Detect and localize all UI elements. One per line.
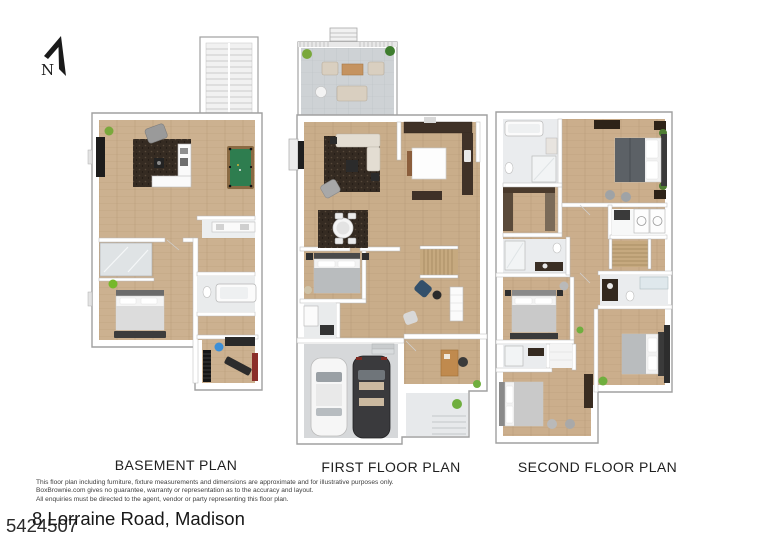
kitchen-island <box>412 148 446 179</box>
pouf <box>605 190 615 200</box>
basement-stairwell <box>200 37 258 117</box>
sofa <box>367 147 380 171</box>
side-table <box>316 87 327 98</box>
second-floor-plan-label: SECOND FLOOR PLAN <box>489 459 706 475</box>
disclaimer-line-2: BoxBrownie.com gives no guarantee, warra… <box>36 487 436 495</box>
coffee-table <box>346 160 358 172</box>
plant <box>577 327 584 334</box>
plant <box>105 127 114 136</box>
shower <box>640 277 668 289</box>
pouf <box>565 419 575 429</box>
nightstand <box>654 190 666 199</box>
bathroom-4 <box>600 275 668 305</box>
bean-bag <box>109 280 118 289</box>
side-table <box>433 291 442 300</box>
compass: N <box>36 30 78 82</box>
second-floor-stairs <box>609 239 651 269</box>
outdoor-sofa <box>337 86 367 101</box>
desk <box>441 350 458 376</box>
window <box>88 292 92 306</box>
master-bathroom <box>503 119 558 185</box>
desk-chair <box>458 357 468 367</box>
vanity <box>528 348 544 356</box>
window <box>88 150 92 164</box>
basement-plan-label: BASEMENT PLAN <box>68 457 284 473</box>
toilet <box>626 291 634 301</box>
nightstand <box>654 121 666 130</box>
deck <box>298 28 397 118</box>
pouf <box>621 192 631 202</box>
first-floor-plan <box>288 26 493 450</box>
entry-porch <box>406 393 468 436</box>
second-floor-plan <box>490 106 690 450</box>
car-dark <box>353 356 390 438</box>
washer <box>634 209 649 233</box>
pouf <box>560 282 569 291</box>
plant <box>599 377 608 386</box>
plant <box>302 49 312 59</box>
pouf <box>547 419 557 429</box>
first-floor-bedroom <box>304 253 369 294</box>
compass-label: N <box>41 61 54 79</box>
bathroom-2 <box>503 239 566 273</box>
toilet <box>203 287 211 298</box>
toilet <box>553 243 561 253</box>
first-floor-stairs <box>420 246 458 278</box>
fireplace-bump <box>289 139 298 170</box>
dresser <box>594 120 620 129</box>
plant <box>473 380 481 388</box>
tv <box>298 141 304 169</box>
disclaimer-line-3: All enquiries must be directed to the ag… <box>36 496 436 504</box>
bookshelf <box>450 287 463 321</box>
dining-area <box>318 210 368 248</box>
first-floor-plan-label: FIRST FLOOR PLAN <box>291 459 491 475</box>
closet <box>550 344 572 368</box>
basement-bathroom <box>197 276 256 312</box>
outdoor-armchair <box>322 62 338 75</box>
vanity <box>535 262 563 271</box>
plant <box>452 399 462 409</box>
property-address: 8 Lorraine Road, Madison <box>32 508 245 530</box>
toilet <box>505 163 513 174</box>
sofa <box>336 134 380 147</box>
laundry <box>612 209 665 235</box>
pool-table <box>227 146 254 189</box>
car-white <box>311 358 347 436</box>
shower <box>505 346 523 366</box>
floor-plan-sheet: N <box>0 0 768 542</box>
vanity <box>546 138 557 154</box>
basement-kitchenette <box>202 220 255 238</box>
coffee-table <box>342 64 363 75</box>
outdoor-armchair <box>368 62 384 75</box>
disclaimer: This floor plan including furniture, fix… <box>36 479 436 504</box>
pouf <box>304 286 312 294</box>
tv <box>96 137 105 177</box>
basement-plan <box>85 30 300 402</box>
mirrored-closet <box>100 243 152 276</box>
accent-wall <box>664 325 670 383</box>
bed <box>615 134 667 186</box>
wardrobe <box>584 374 593 408</box>
vanity <box>602 279 618 301</box>
plant <box>385 46 395 56</box>
disclaimer-line-1: This floor plan including furniture, fix… <box>36 479 436 487</box>
dryer <box>650 209 665 233</box>
mudroom <box>304 303 336 338</box>
bathroom-3 <box>503 344 546 368</box>
